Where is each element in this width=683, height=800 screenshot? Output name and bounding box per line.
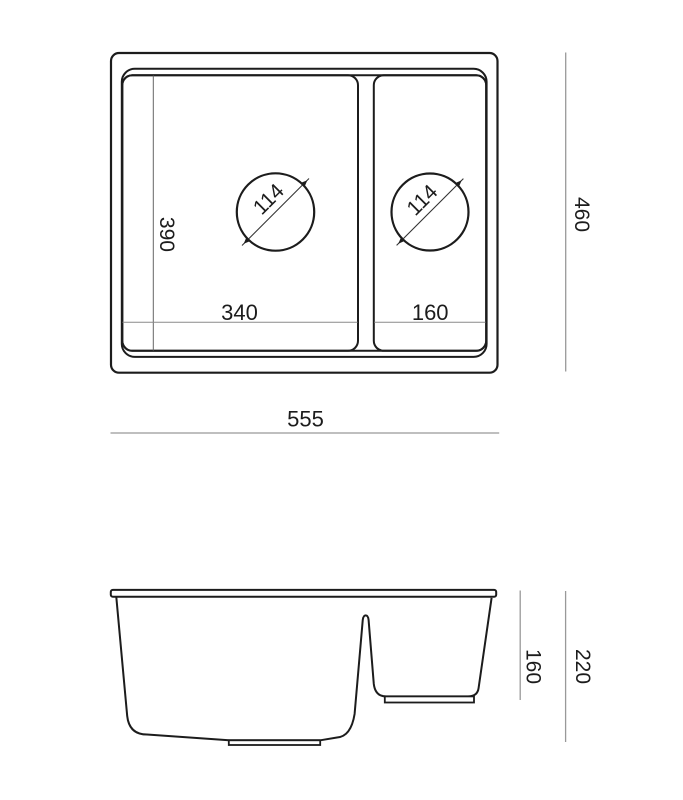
svg-text:340: 340: [221, 300, 258, 325]
svg-text:460: 460: [570, 197, 593, 232]
svg-text:160: 160: [521, 649, 544, 684]
svg-text:390: 390: [155, 217, 178, 252]
svg-text:160: 160: [412, 300, 449, 325]
svg-text:555: 555: [287, 406, 324, 431]
svg-text:220: 220: [571, 649, 594, 684]
